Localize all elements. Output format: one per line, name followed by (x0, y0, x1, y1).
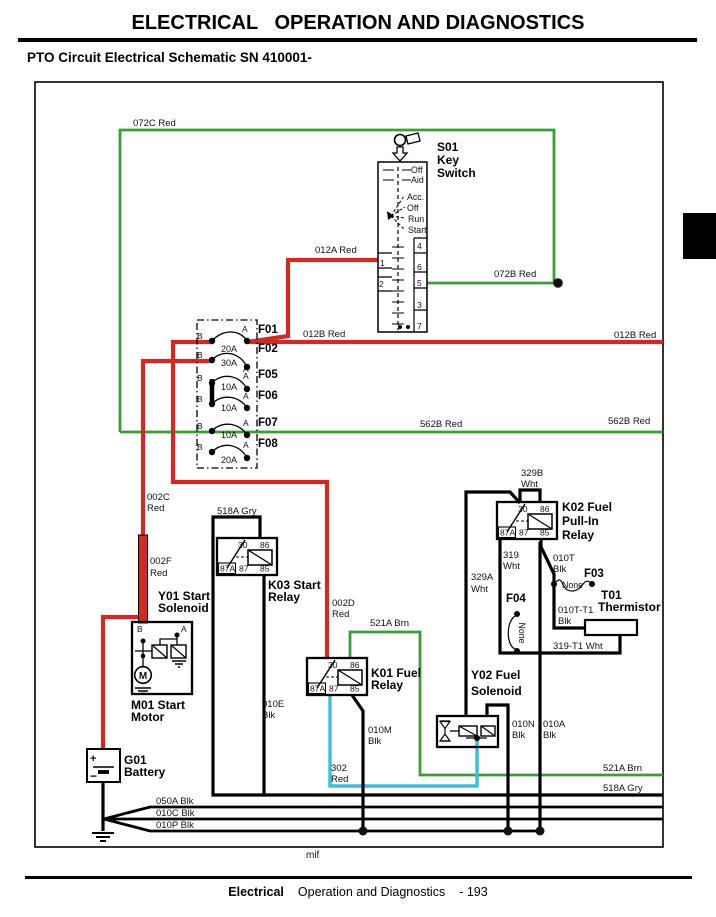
label-012a: 012A Red (315, 245, 357, 256)
switch-pos-start: Start (408, 225, 427, 235)
switch-pos-off2: Off (407, 203, 419, 213)
label-012b-right: 012B Red (614, 330, 656, 341)
label-319t1: 319-T1 Wht (553, 641, 603, 652)
motor-ground-icon (135, 688, 151, 694)
key-switch-s01: Off Aid Acc. Off Run Start 4 1 6 2 5 3 7… (378, 133, 476, 332)
footer-rule (25, 876, 692, 879)
label-072c: 072C Red (133, 118, 176, 129)
relay-k01: 30 86 87A 87 85 K01 Fuel Relay (307, 658, 421, 695)
switch-term-2: 2 (379, 279, 384, 289)
footer-chapter: Operation and Diagnostics (298, 885, 445, 899)
fuse-term-b: B (197, 442, 203, 452)
switch-term-4: 4 (417, 241, 422, 251)
label-k03-line2: Relay (268, 590, 300, 604)
label-s01-key: Key (437, 153, 459, 167)
switch-term-3: 3 (417, 300, 422, 310)
fuse-term-b: B (197, 331, 203, 341)
label-010t-a: 010T (553, 553, 575, 564)
relay-term-87a: 87A (220, 564, 235, 574)
junction-dot (536, 827, 545, 836)
label-002c-a: 002C (147, 492, 170, 503)
fuse-f05: B A F05 10A (197, 369, 278, 392)
relay-term-85: 85 (260, 564, 270, 574)
battery-ground-icon (92, 833, 114, 841)
fuse-ref: F08 (258, 438, 278, 450)
label-012b-left: 012B Red (303, 329, 345, 340)
relay-term-85: 85 (350, 684, 360, 694)
switch-term-5: 5 (417, 278, 422, 288)
f03-value: None (562, 580, 583, 590)
label-002f-a: 002F (150, 556, 172, 567)
footer-section: Electrical (228, 885, 284, 899)
relay-term-86: 86 (350, 660, 360, 670)
label-329a-a: 329A (471, 572, 494, 583)
wire-002f-red-cable (139, 535, 148, 623)
switch-contact-ladder (392, 247, 404, 324)
battery-g01: + − G01 Battery (87, 749, 166, 783)
fuse-rating: 30A (221, 358, 237, 368)
fuse-ref: F01 (258, 324, 278, 336)
fuse-term-a: A (243, 418, 249, 428)
switch-term-1: 1 (380, 258, 385, 268)
fuse-rating: 10A (221, 430, 237, 440)
fuse-term-a: A (243, 391, 249, 401)
schematic-canvas: B A F01 20A B A F02 30A B A F05 10A B (0, 0, 716, 917)
label-010tt1-a: 010T-T1 (558, 605, 593, 616)
junction-dot (553, 278, 563, 288)
label-010c: 010C Blk (156, 808, 195, 819)
fuse-term-b: B (197, 350, 203, 360)
fuse-f08: B A F08 20A (197, 438, 278, 465)
page-tab-marker (683, 213, 716, 259)
fuse-term-b: B (197, 394, 203, 404)
switch-contact-dot (406, 325, 410, 329)
battery-minus: − (90, 769, 97, 783)
relay-term-87a: 87A (500, 528, 515, 538)
fuse-ref: F02 (258, 343, 278, 355)
fuse-term-a: A (243, 440, 249, 450)
label-k02-line2: Pull-In (562, 514, 599, 528)
label-319-a: 319 (503, 550, 519, 561)
fuse-rating: 20A (221, 344, 237, 354)
fuse-ref: F05 (258, 369, 278, 381)
wire-battery-positive (103, 617, 140, 749)
relay-term-87: 87 (519, 528, 529, 538)
label-562b-left: 562B Red (420, 419, 462, 430)
label-010m-b: Blk (368, 736, 381, 747)
fuse-rating: 20A (221, 455, 237, 465)
label-319-b: Wht (503, 561, 520, 572)
page-footer: ElectricalOperation and Diagnostics- 193 (0, 885, 716, 899)
label-g01-line2: Battery (124, 765, 166, 779)
y01-coil-ground-icon (172, 661, 186, 667)
label-m01-line2: Motor (131, 710, 165, 724)
switch-pos-aid: Aid (411, 175, 424, 185)
label-010e-b: Blk (262, 710, 275, 721)
schematic-frame (35, 82, 663, 847)
label-s01: S01 (437, 140, 459, 154)
battery-plus: + (90, 753, 96, 765)
junction-dots (359, 278, 563, 835)
label-010p: 010P Blk (156, 820, 194, 831)
switch-pos-acc: Acc. (407, 192, 424, 202)
switch-term-7: 7 (417, 321, 422, 331)
fuse-rating: 10A (221, 382, 237, 392)
label-010a-b: Blk (543, 730, 556, 741)
switch-rotary-arrow (387, 211, 394, 220)
junction-dot (359, 827, 368, 836)
label-y01-line2: Solenoid (158, 601, 209, 615)
relay-term-30: 30 (328, 660, 338, 670)
label-329b-a: 329B (521, 468, 543, 479)
label-t01-name: Thermistor (598, 600, 661, 614)
y01-term-a: A (181, 624, 187, 634)
label-k02-line3: Relay (562, 528, 594, 542)
switch-term-6: 6 (417, 262, 422, 272)
switch-pos-off1: Off (411, 165, 423, 175)
label-y02-line2: Solenoid (471, 684, 522, 698)
fuse-term-b: B (197, 373, 203, 383)
wire-072c-red (120, 130, 554, 432)
label-072b: 072B Red (494, 269, 536, 280)
label-329b-b: Wht (521, 479, 538, 490)
key-icon-blade (406, 133, 420, 144)
label-k02-line1: K02 Fuel (562, 500, 612, 514)
relay-term-87a: 87A (310, 684, 325, 694)
relay-term-86: 86 (540, 504, 550, 514)
motor-letter: M (139, 671, 147, 682)
label-f03: F03 (584, 568, 604, 580)
fuse-term-b: B (197, 421, 203, 431)
label-302-a: 302 (331, 763, 347, 774)
label-010m-a: 010M (368, 725, 392, 736)
fuse-ref: F07 (258, 417, 278, 429)
relay-term-85: 85 (540, 528, 550, 538)
label-010tt1-b: Blk (558, 616, 571, 627)
thermistor-t01: T01 Thermistor (585, 588, 661, 635)
key-turn-arrow-icon (393, 147, 407, 161)
label-518a-top: 518A Gry (217, 506, 257, 517)
wire-518a-gry (213, 517, 663, 795)
label-010e-a: 010E (262, 699, 284, 710)
label-002f-b: Red (150, 568, 167, 579)
label-050a: 050A Blk (156, 796, 194, 807)
fuse-f07: B A F07 10A (197, 417, 278, 440)
label-010a-a: 010A (543, 719, 566, 730)
junction-dot (504, 827, 513, 836)
y01-term-b: B (137, 624, 143, 634)
f04-value: None (517, 622, 527, 643)
figure-note-mif: mif (306, 850, 320, 861)
relay-term-86: 86 (260, 540, 270, 550)
label-562b-right: 562B Red (608, 416, 650, 427)
fuse-term-a: A (243, 371, 249, 381)
label-f04: F04 (506, 593, 526, 605)
relay-k03: 30 86 87A 87 85 K03 Start Relay (217, 538, 321, 604)
label-002d-b: Red (332, 609, 349, 620)
label-521a-right: 521A Brn (603, 763, 642, 774)
manual-page: { "page": { "title": "ELECTRICAL OPERATI… (0, 0, 716, 917)
cyan-wire (330, 695, 477, 786)
label-010n-b: Blk (512, 730, 525, 741)
relay-term-87: 87 (239, 564, 249, 574)
label-302-b: Red (331, 774, 348, 785)
fuse-f06: B A F06 10A (197, 390, 278, 413)
switch-position-ticks (383, 170, 411, 180)
relay-term-30: 30 (238, 540, 248, 550)
footer-page-number: - 193 (459, 885, 488, 899)
label-010n-a: 010N (512, 719, 535, 730)
wire-010m-blk (352, 695, 363, 831)
label-521a-left: 521A Brn (370, 618, 409, 629)
relay-term-30: 30 (518, 504, 528, 514)
fuse-term-a: A (242, 324, 248, 334)
wire-302-red (330, 695, 477, 786)
label-002c-b: Red (147, 503, 164, 514)
y02-diode-icon (440, 721, 450, 741)
label-s01-switch: Switch (437, 166, 476, 180)
switch-contact-dot (398, 325, 402, 329)
label-y02-line1: Y02 Fuel (471, 668, 520, 682)
label-k01-line2: Relay (371, 678, 403, 692)
fuse-f04-none: F04 None (506, 593, 527, 654)
fuse-block: B A F01 20A B A F02 30A B A F05 10A B (197, 320, 278, 468)
key-icon (395, 135, 406, 146)
relay-k02: 30 86 87A 87 85 K02 Fuel Pull-In Relay (497, 500, 612, 542)
label-002d-a: 002D (332, 598, 355, 609)
fuse-rating: 10A (221, 403, 237, 413)
relay-term-87: 87 (329, 684, 339, 694)
label-518a-right: 518A Gry (603, 783, 643, 794)
label-010t-b: Blk (553, 564, 566, 575)
fuse-ref: F06 (258, 390, 278, 402)
label-329a-b: Wht (471, 584, 488, 595)
switch-pos-run: Run (408, 214, 424, 224)
